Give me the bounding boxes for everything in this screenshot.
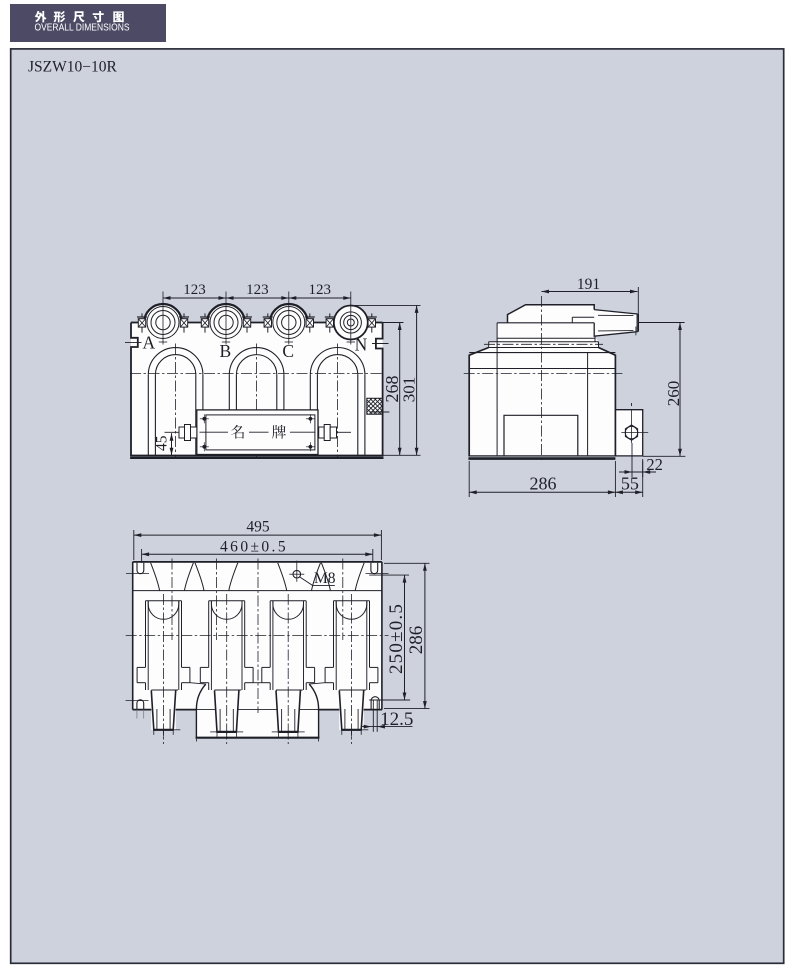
svg-text:OVERALL DIMENSIONS: OVERALL DIMENSIONS [35,23,130,34]
svg-text:N: N [355,335,368,355]
svg-text:55: 55 [621,474,639,494]
svg-text:460±0.5: 460±0.5 [220,539,288,556]
svg-text:M8: M8 [314,570,336,587]
svg-text:22: 22 [646,455,663,474]
svg-text:495: 495 [246,519,270,536]
svg-text:286: 286 [530,474,557,494]
svg-text:191: 191 [577,276,600,293]
svg-text:12.5: 12.5 [380,709,413,730]
svg-text:B: B [219,341,231,361]
svg-text:JSZW10−10R: JSZW10−10R [28,59,117,76]
svg-text:286: 286 [406,626,427,655]
svg-text:A: A [142,332,155,352]
svg-text:250±0.5: 250±0.5 [386,603,407,674]
svg-text:123: 123 [246,282,269,298]
svg-text:301: 301 [399,377,418,403]
svg-text:123: 123 [183,282,206,298]
svg-text:45: 45 [153,435,170,451]
svg-text:260: 260 [664,381,683,407]
svg-text:123: 123 [309,282,332,298]
svg-text:C: C [282,341,294,361]
